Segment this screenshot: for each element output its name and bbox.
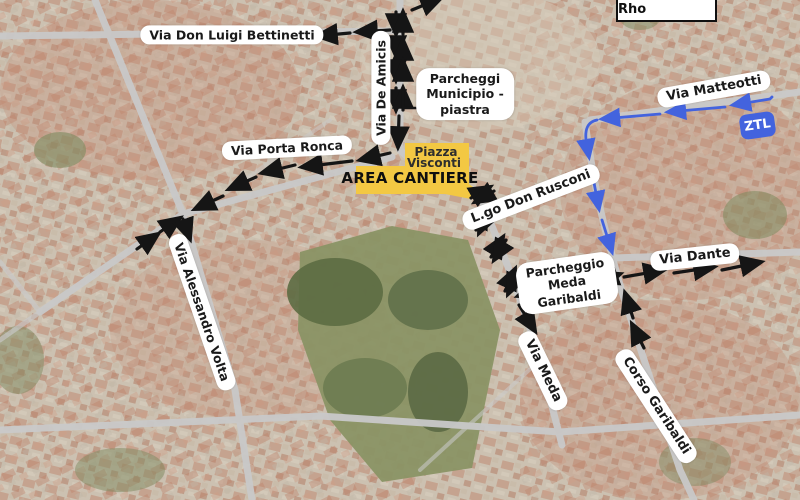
label-line: piastra <box>426 102 504 117</box>
arrow-top-diagonal <box>412 0 441 10</box>
label-line: Parcheggi <box>426 71 504 86</box>
label-line: Municipio - <box>426 86 504 101</box>
ztl-badge: ZTL <box>738 111 776 141</box>
arrow-to-piazza <box>398 116 399 147</box>
traffic-plan-map: { "region": { "municipality_box": "Comun… <box>0 0 800 500</box>
area-cantiere-banner: AREA CANTIERE <box>341 169 478 187</box>
label-via-de-amicis: Via De Amicis <box>371 31 390 145</box>
label-via-don-luigi-bettinetti: Via Don Luigi Bettinetti <box>140 25 323 44</box>
label-parcheggi-municipio: Parcheggi Municipio - piastra <box>416 68 514 120</box>
municipality-title-box: Comune di Rho <box>616 0 717 22</box>
piazza-visconti-line2: Visconti <box>407 156 461 170</box>
